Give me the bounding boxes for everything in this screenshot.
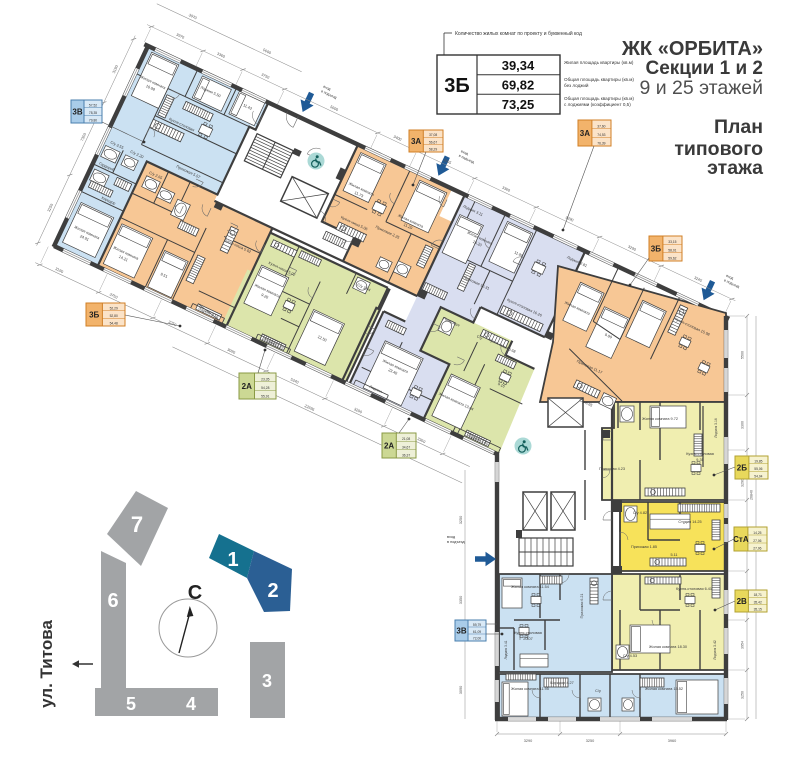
svg-text:5500: 5500 [741,351,745,359]
svg-text:3960: 3960 [668,739,676,743]
svg-text:23,35: 23,35 [261,378,269,382]
svg-text:36,37: 36,37 [402,454,410,458]
svg-text:54,48: 54,48 [110,322,118,326]
svg-text:55,91: 55,91 [261,395,269,399]
svg-text:27,06: 27,06 [753,539,761,543]
svg-text:Жилая комната 9.72: Жилая комната 9.72 [642,417,678,421]
svg-text:69,82: 69,82 [502,78,535,93]
svg-text:14,25: 14,25 [753,531,761,535]
svg-text:54,04: 54,04 [754,475,762,479]
svg-text:5.11: 5.11 [670,553,677,557]
svg-text:3350: 3350 [459,596,463,604]
svg-text:3290: 3290 [741,479,745,487]
svg-text:Прихожая 1.85: Прихожая 1.85 [631,545,657,549]
svg-text:Общая площадь квартиры (кв.м): Общая площадь квартиры (кв.м) [564,96,634,101]
svg-text:С/у: С/у [595,689,601,693]
svg-text:Студия 14.25: Студия 14.25 [678,520,701,524]
svg-text:С: С [188,582,202,604]
svg-text:2Б: 2Б [737,463,747,472]
svg-text:3090: 3090 [459,686,463,694]
svg-text:ЖК «ОРБИТА»: ЖК «ОРБИТА» [621,38,763,60]
svg-text:72,00: 72,00 [473,637,481,641]
svg-text:Кухня-столовая: Кухня-столовая [686,452,714,456]
svg-text:52,29: 52,29 [110,307,118,311]
svg-text:Жилая площадь квартиры (кв.м): Жилая площадь квартиры (кв.м) [564,60,634,65]
svg-text:59,62: 59,62 [668,257,676,261]
svg-text:СтА: СтА [733,535,749,544]
svg-text:Лоджия 3.16: Лоджия 3.16 [714,418,718,438]
svg-text:Лоджия 3.41: Лоджия 3.41 [504,640,508,659]
svg-text:3Б: 3Б [444,75,470,97]
svg-text:26840: 26840 [750,490,754,500]
svg-text:18,71: 18,71 [754,593,762,597]
svg-text:3290: 3290 [524,739,532,743]
svg-text:С/у 4.53: С/у 4.53 [623,654,637,658]
svg-text:Прихожая 4.23: Прихожая 4.23 [599,467,625,471]
svg-text:3Б: 3Б [89,310,99,319]
svg-text:56,67: 56,67 [429,141,437,145]
svg-text:1: 1 [227,549,238,571]
svg-text:Кухня-столовая: Кухня-столовая [514,631,542,635]
svg-text:35,42: 35,42 [754,601,762,605]
svg-text:4: 4 [186,694,196,714]
svg-text:Жилая комната 15.52: Жилая комната 15.52 [645,687,683,691]
svg-text:в подъезд: в подъезд [447,540,465,544]
svg-text:21,08: 21,08 [402,437,410,441]
svg-text:9 и 25 этажей: 9 и 25 этажей [639,77,763,99]
svg-text:3В: 3В [72,107,82,116]
svg-text:3250: 3250 [741,691,745,699]
svg-text:37,08: 37,08 [429,133,437,137]
svg-text:Жилая комната 18.30: Жилая комната 18.30 [649,645,687,649]
svg-text:5: 5 [126,694,136,714]
svg-text:Коридор 4.27: Коридор 4.27 [550,681,573,685]
svg-text:76,39: 76,39 [597,142,605,146]
svg-text:Жилая комната 11.54: Жилая комната 11.54 [511,585,549,589]
svg-text:2: 2 [267,580,278,602]
svg-text:2В: 2В [737,597,747,606]
svg-text:55,06: 55,06 [754,467,762,471]
svg-text:Жилая комната 11.95: Жилая комната 11.95 [511,687,549,691]
svg-text:39,34: 39,34 [502,58,535,73]
svg-text:2А: 2А [242,382,252,391]
svg-text:61,09: 61,09 [473,630,481,634]
svg-text:2А: 2А [384,441,394,450]
svg-text:3250: 3250 [586,739,594,743]
svg-text:без лоджий: без лоджий [564,82,589,88]
svg-text:Кухня-столовая 6.41: Кухня-столовая 6.41 [676,587,712,591]
svg-text:35,15: 35,15 [754,608,762,612]
svg-text:с лоджиями (коэффициент 0,5): с лоджиями (коэффициент 0,5) [564,102,631,107]
svg-text:3250: 3250 [459,516,463,524]
svg-text:20.07: 20.07 [523,637,533,641]
svg-text:Общая площадь квартиры (кв.м): Общая площадь квартиры (кв.м) [564,77,634,82]
svg-text:ул. Титова: ул. Титова [37,620,56,708]
svg-text:Лоджия 3.42: Лоджия 3.42 [713,640,717,660]
svg-text:58,01: 58,01 [668,249,676,253]
svg-text:этажа: этажа [707,157,763,179]
svg-text:34,67: 34,67 [402,446,410,450]
svg-text:6: 6 [107,590,118,612]
svg-text:3А: 3А [580,129,590,138]
svg-text:3А: 3А [411,137,421,146]
svg-text:19,85: 19,85 [754,460,762,464]
svg-text:3: 3 [262,671,272,691]
svg-text:33,15: 33,15 [668,240,676,244]
svg-text:59,79: 59,79 [473,623,481,627]
svg-text:3300: 3300 [741,421,745,429]
svg-text:С/у 4.82: С/у 4.82 [633,511,647,515]
svg-text:52,80: 52,80 [110,314,118,318]
svg-text:Количество жилых комнат по про: Количество жилых комнат по проекту и бук… [455,30,582,37]
svg-text:73,25: 73,25 [502,97,535,112]
svg-text:7: 7 [131,512,143,537]
svg-text:37,60: 37,60 [597,125,605,129]
svg-text:3В: 3В [456,626,466,635]
svg-text:58,29: 58,29 [429,148,437,152]
svg-text:вход: вход [447,535,456,539]
svg-text:74,53: 74,53 [597,133,605,137]
svg-text:3Б: 3Б [651,244,661,253]
svg-text:54,28: 54,28 [261,386,269,390]
svg-text:27,06: 27,06 [753,547,761,551]
svg-text:Секции 1 и 2: Секции 1 и 2 [646,58,764,79]
svg-text:Прихожая 6.21: Прихожая 6.21 [580,594,584,619]
svg-text:79,80: 79,80 [89,119,97,123]
svg-text:План: План [714,116,763,138]
svg-text:57,52: 57,52 [89,104,97,108]
svg-text:78,35: 78,35 [89,111,97,115]
svg-text:3954: 3954 [741,641,745,649]
